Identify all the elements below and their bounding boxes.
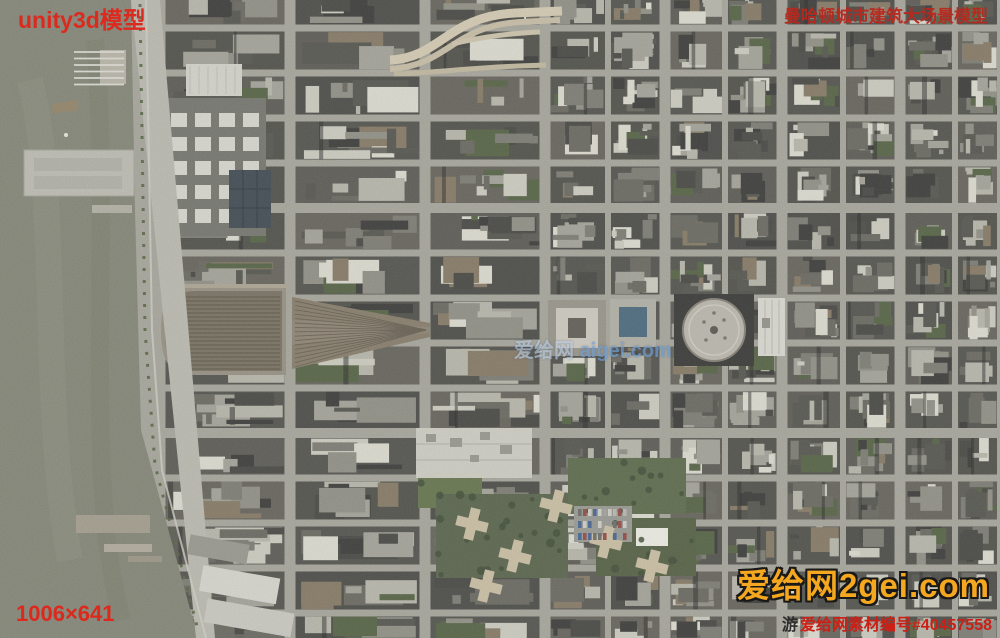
center-watermark-en: aigei.com: [580, 340, 672, 362]
manhattan-satellite-map: [0, 0, 1000, 638]
center-watermark-cn: 爱给网: [514, 340, 580, 362]
satellite-asset-preview: unity3d模型 曼哈顿城市建筑大场景模型 爱给网 aigei.com 100…: [0, 0, 1000, 638]
brand-watermark: 爱给网2gei.com: [737, 568, 990, 604]
dimensions-label: 1006×641: [16, 602, 115, 626]
asset-id-line: 游爱给网素材编号#40457558: [782, 617, 992, 635]
center-watermark: 爱给网 aigei.com: [514, 340, 672, 362]
asset-id-label: 爱给网素材编号#40457558: [800, 617, 992, 634]
top-right-title: 曼哈顿城市建筑大场景模型: [784, 8, 988, 27]
top-left-label: unity3d模型: [18, 8, 146, 33]
photo-grain: [0, 0, 1000, 638]
asset-id-prefix: 游: [782, 617, 798, 634]
